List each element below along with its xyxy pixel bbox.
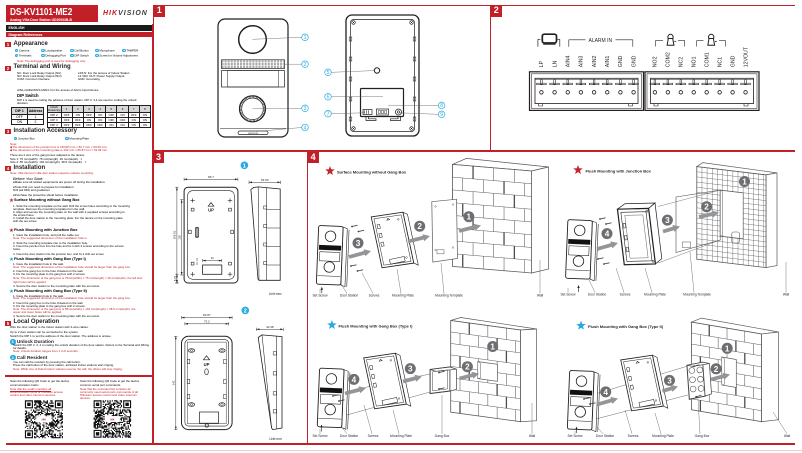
svg-text:5: 5	[327, 70, 330, 76]
svg-text:Door Station: Door Station	[596, 434, 614, 438]
svg-text:Mounting Plate: Mounting Plate	[390, 434, 412, 438]
svg-text:Set Screw: Set Screw	[312, 294, 328, 298]
svg-text:3: 3	[356, 239, 361, 248]
svg-text:Unit:mm: Unit:mm	[269, 437, 282, 441]
svg-text:Door Station: Door Station	[340, 294, 358, 298]
svg-text:NO2: NO2	[653, 56, 659, 67]
svg-text:ALARM IN: ALARM IN	[588, 38, 612, 44]
svg-text:UP: UP	[204, 362, 210, 367]
svg-text:Flush Mounting with Junction B: Flush Mounting with Junction Box	[586, 169, 652, 174]
svg-text:12VOUT: 12VOUT	[743, 46, 749, 67]
svg-text:Flush Mounting with Gang Box (: Flush Mounting with Gang Box (Type II)	[588, 324, 664, 329]
svg-text:1: 1	[725, 344, 730, 353]
svg-text:30: 30	[211, 256, 214, 260]
svg-text:Set Screw: Set Screw	[560, 293, 576, 297]
svg-text:Screws: Screws	[620, 293, 631, 297]
svg-text:73.2: 73.2	[204, 319, 210, 323]
svg-text:GND: GND	[631, 55, 637, 67]
svg-text:AIN3: AIN3	[579, 56, 585, 68]
svg-text:Screws: Screws	[628, 434, 639, 438]
svg-text:UP: UP	[208, 207, 214, 212]
svg-text:Flush Mounting with Gang Box (: Flush Mounting with Gang Box (Type I)	[339, 324, 414, 329]
svg-text:82.87: 82.87	[203, 313, 211, 317]
svg-text:3: 3	[667, 376, 672, 385]
svg-text:LP: LP	[539, 60, 545, 67]
svg-text:4: 4	[352, 375, 357, 384]
svg-text:159.91: 159.91	[173, 230, 177, 239]
svg-text:1: 1	[467, 213, 472, 222]
svg-text:53.59: 53.59	[261, 178, 269, 182]
svg-text:2: 2	[244, 308, 247, 314]
svg-text:1: 1	[490, 343, 495, 352]
svg-text:Unit:mm: Unit:mm	[269, 292, 282, 296]
svg-text:3: 3	[304, 106, 307, 112]
svg-text:2: 2	[714, 365, 719, 374]
svg-text:2: 2	[417, 222, 422, 231]
svg-text:Gang Box: Gang Box	[695, 434, 710, 438]
svg-text:NO1: NO1	[692, 56, 698, 67]
svg-text:Wall: Wall	[784, 434, 791, 438]
svg-text:AIN2: AIN2	[592, 56, 598, 68]
svg-text:Surface Mounting without Gang: Surface Mounting without Gang Box	[337, 170, 407, 175]
svg-text:HIK: HIK	[42, 418, 47, 422]
svg-text:1: 1	[742, 178, 747, 187]
svg-text:1: 1	[304, 35, 307, 41]
svg-text:Screws: Screws	[368, 434, 379, 438]
svg-text:2: 2	[704, 203, 709, 212]
svg-text:Mounting Template: Mounting Template	[683, 293, 711, 297]
svg-text:COM2: COM2	[666, 52, 672, 67]
svg-text:Mounting Plate: Mounting Plate	[392, 294, 414, 298]
svg-text:NC2: NC2	[679, 57, 685, 67]
svg-text:GND: GND	[618, 55, 624, 67]
svg-text:Mounting Plate: Mounting Plate	[644, 293, 666, 297]
svg-text:4: 4	[605, 230, 610, 239]
svg-text:Mounting Plate: Mounting Plate	[652, 434, 674, 438]
svg-text:8: 8	[440, 103, 443, 109]
svg-text:COM1: COM1	[705, 52, 711, 67]
svg-text:3: 3	[665, 216, 670, 225]
svg-text:43.38: 43.38	[266, 325, 274, 329]
svg-text:8.78: 8.78	[173, 276, 177, 282]
svg-text:Mounting Template: Mounting Template	[435, 294, 463, 298]
svg-text:AIN1: AIN1	[605, 56, 611, 68]
svg-text:4: 4	[603, 388, 608, 397]
svg-text:15: 15	[196, 258, 199, 261]
svg-text:Door Station: Door Station	[340, 434, 358, 438]
svg-text:Gang Box: Gang Box	[435, 434, 450, 438]
svg-text:2: 2	[465, 363, 470, 372]
svg-text:Set Screw: Set Screw	[312, 434, 328, 438]
svg-text:Wall: Wall	[537, 294, 544, 298]
svg-text:Wall: Wall	[529, 434, 536, 438]
svg-text:AIN4: AIN4	[566, 56, 572, 68]
svg-text:2: 2	[304, 62, 307, 68]
svg-text:4: 4	[304, 125, 307, 131]
svg-text:NC1: NC1	[717, 57, 723, 67]
svg-text:Set Screw: Set Screw	[567, 434, 583, 438]
svg-text:3: 3	[408, 365, 413, 374]
svg-text:Screws: Screws	[369, 294, 380, 298]
svg-text:142: 142	[172, 380, 176, 385]
svg-text:6: 6	[327, 95, 330, 101]
svg-text:86.7: 86.7	[208, 175, 214, 179]
svg-text:HIKVISION: HIKVISION	[248, 133, 259, 135]
svg-text:Wall: Wall	[783, 293, 790, 297]
svg-text:130: 130	[178, 235, 182, 240]
svg-text:GND: GND	[730, 55, 736, 67]
svg-text:HIK: HIK	[110, 417, 115, 421]
svg-text:Door Station: Door Station	[588, 293, 606, 297]
svg-text:9: 9	[440, 112, 443, 118]
svg-text:1: 1	[243, 163, 246, 169]
svg-text:LN: LN	[552, 60, 558, 67]
svg-text:7: 7	[327, 112, 330, 118]
